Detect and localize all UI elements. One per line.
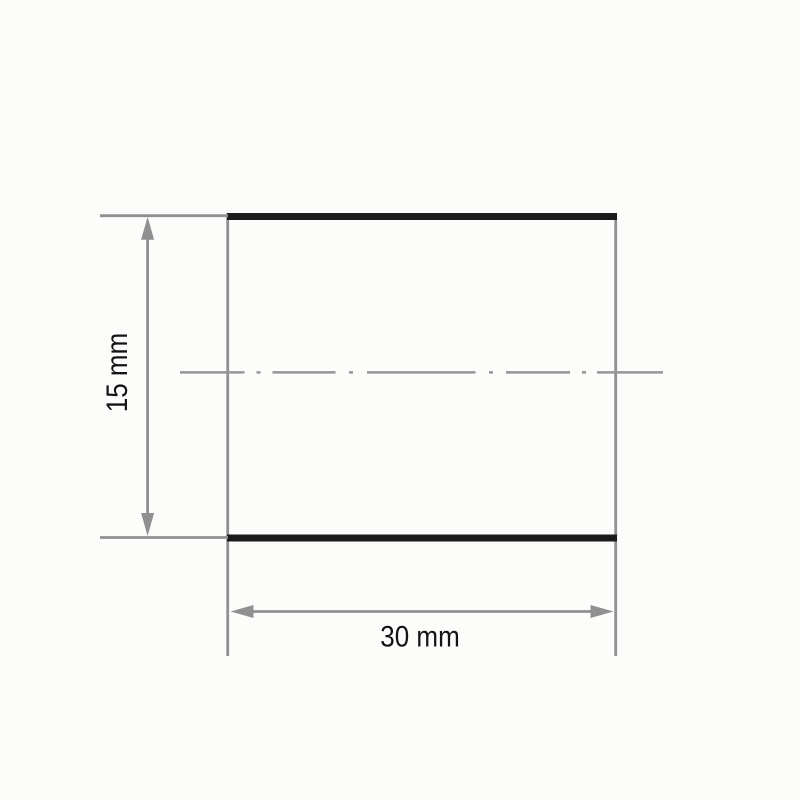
svg-text:30 mm: 30 mm — [380, 620, 459, 653]
svg-text:15 mm: 15 mm — [100, 333, 133, 412]
